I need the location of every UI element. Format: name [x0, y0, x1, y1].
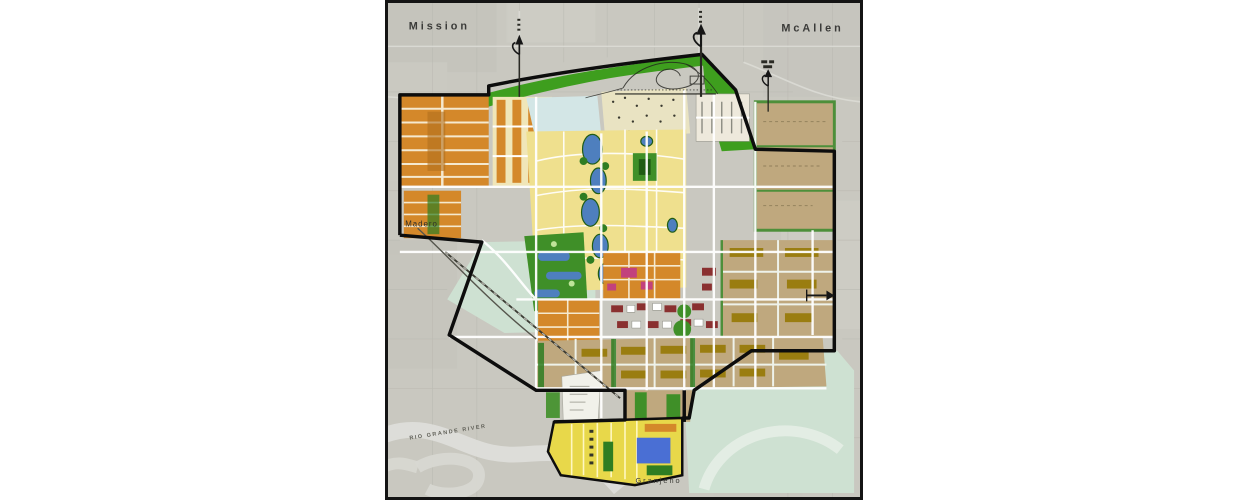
- label-mission: Mission: [409, 21, 470, 33]
- label-madero: Madero: [405, 219, 438, 228]
- label-granjeno: Granjeno: [635, 476, 681, 485]
- map-svg: Mission McAllen Madero Granjeno RIO GRAN…: [388, 3, 860, 497]
- screenshot-canvas: Mission McAllen Madero Granjeno RIO GRAN…: [0, 0, 1235, 500]
- district-orange-west: [404, 191, 461, 238]
- master-plan-map: Mission McAllen Madero Granjeno RIO GRAN…: [385, 0, 863, 500]
- granjeno-village: [548, 418, 682, 485]
- label-mcallen: McAllen: [781, 23, 843, 35]
- district-superblocks-ne: [755, 102, 834, 230]
- district-superblocks-se: [722, 240, 835, 337]
- district-hotel-blocks: [696, 94, 749, 141]
- district-orange-nw: [400, 95, 489, 186]
